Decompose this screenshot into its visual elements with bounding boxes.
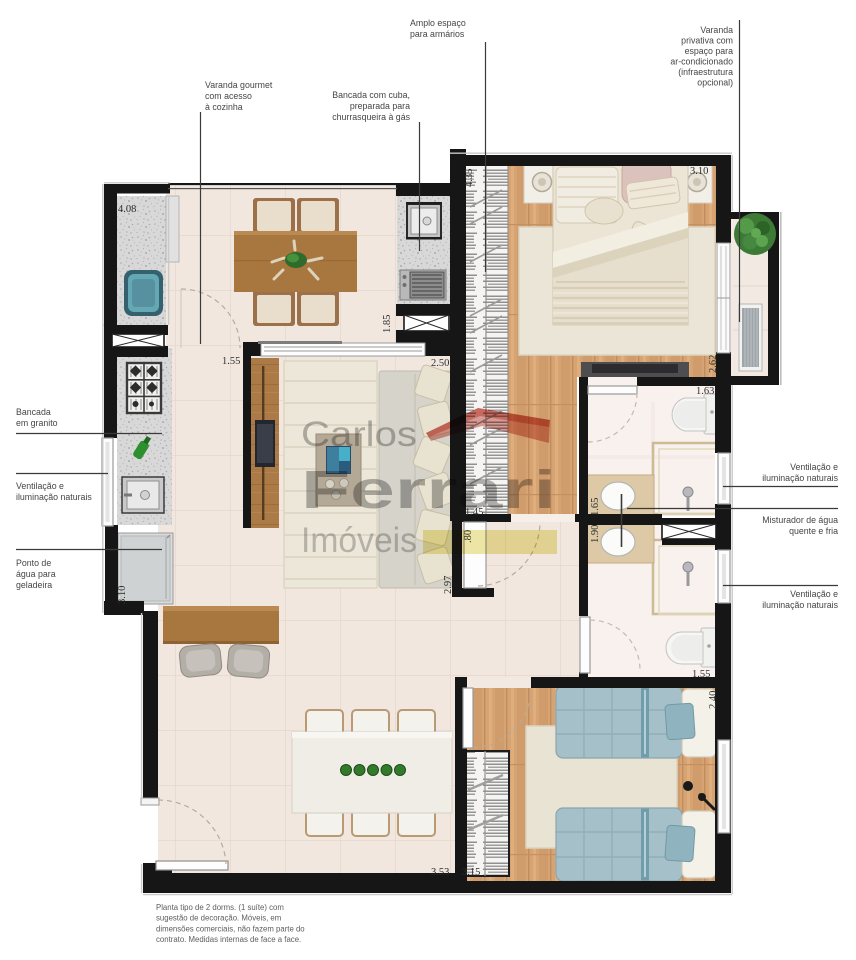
svg-text:para armários: para armários [410,29,465,39]
svg-text:1.65: 1.65 [590,498,601,516]
svg-text:3.53: 3.53 [431,867,449,878]
svg-text:à cozinha: à cozinha [205,102,243,112]
svg-text:Ventilação e: Ventilação e [16,481,64,491]
svg-text:2.97: 2.97 [443,576,454,594]
svg-text:1.90: 1.90 [590,525,601,543]
svg-text:2.50: 2.50 [431,358,449,369]
svg-text:Carlos: Carlos [301,415,417,454]
svg-text:Bancada: Bancada [16,407,51,417]
svg-text:dimensões comerciais, não faze: dimensões comerciais, não fazem parte do [156,924,305,933]
svg-text:1.63: 1.63 [696,386,714,397]
svg-text:sugestão de decoração. Móveis,: sugestão de decoração. Móveis, em [156,914,281,923]
svg-text:geladeira: geladeira [16,580,52,590]
svg-text:Amplo espaço: Amplo espaço [410,18,466,28]
svg-text:2.62: 2.62 [708,355,719,373]
svg-text:ar-condicionado: ar-condicionado [670,57,733,67]
svg-text:espaço para: espaço para [685,46,734,56]
svg-text:1.85: 1.85 [382,315,393,333]
svg-text:preparada para: preparada para [350,101,410,111]
svg-text:Ventilação e: Ventilação e [790,462,838,472]
svg-text:Ventilação e: Ventilação e [790,589,838,599]
svg-text:3.10: 3.10 [117,586,128,604]
svg-text:iluminação naturais: iluminação naturais [762,600,838,610]
svg-text:1.55: 1.55 [692,669,710,680]
svg-text:Imóveis: Imóveis [301,521,417,560]
svg-text:churrasqueira à gás: churrasqueira à gás [332,112,410,122]
svg-text:Planta tipo de 2 dorms. (1 suí: Planta tipo de 2 dorms. (1 suíte) com [156,903,284,912]
svg-text:1.55: 1.55 [222,356,240,367]
svg-text:3.15: 3.15 [462,867,480,878]
svg-text:com acesso: com acesso [205,91,252,101]
svg-text:Varanda: Varanda [700,25,733,35]
svg-text:opcional): opcional) [697,78,733,88]
svg-text:4.08: 4.08 [118,204,136,215]
svg-text:contrato. Medidas internas de: contrato. Medidas internas de face a fac… [156,935,301,944]
svg-text:iluminação naturais: iluminação naturais [16,492,92,502]
svg-text:Varanda gourmet: Varanda gourmet [205,80,273,90]
svg-text:água para: água para [16,569,56,579]
svg-text:privativa com: privativa com [681,36,733,46]
svg-text:quente e fria: quente e fria [789,526,838,536]
svg-text:2.40: 2.40 [708,691,719,709]
svg-text:3.10: 3.10 [690,166,708,177]
svg-text:Bancada com cuba,: Bancada com cuba, [332,90,410,100]
svg-text:em granito: em granito [16,418,58,428]
svg-text:Ferrari: Ferrari [301,460,556,520]
svg-text:Ponto de: Ponto de [16,558,51,568]
svg-text:iluminação naturais: iluminação naturais [762,473,838,483]
svg-text:4.35: 4.35 [464,169,475,187]
svg-text:Misturador de água: Misturador de água [762,515,838,525]
svg-text:(infraestrutura: (infraestrutura [678,67,733,77]
